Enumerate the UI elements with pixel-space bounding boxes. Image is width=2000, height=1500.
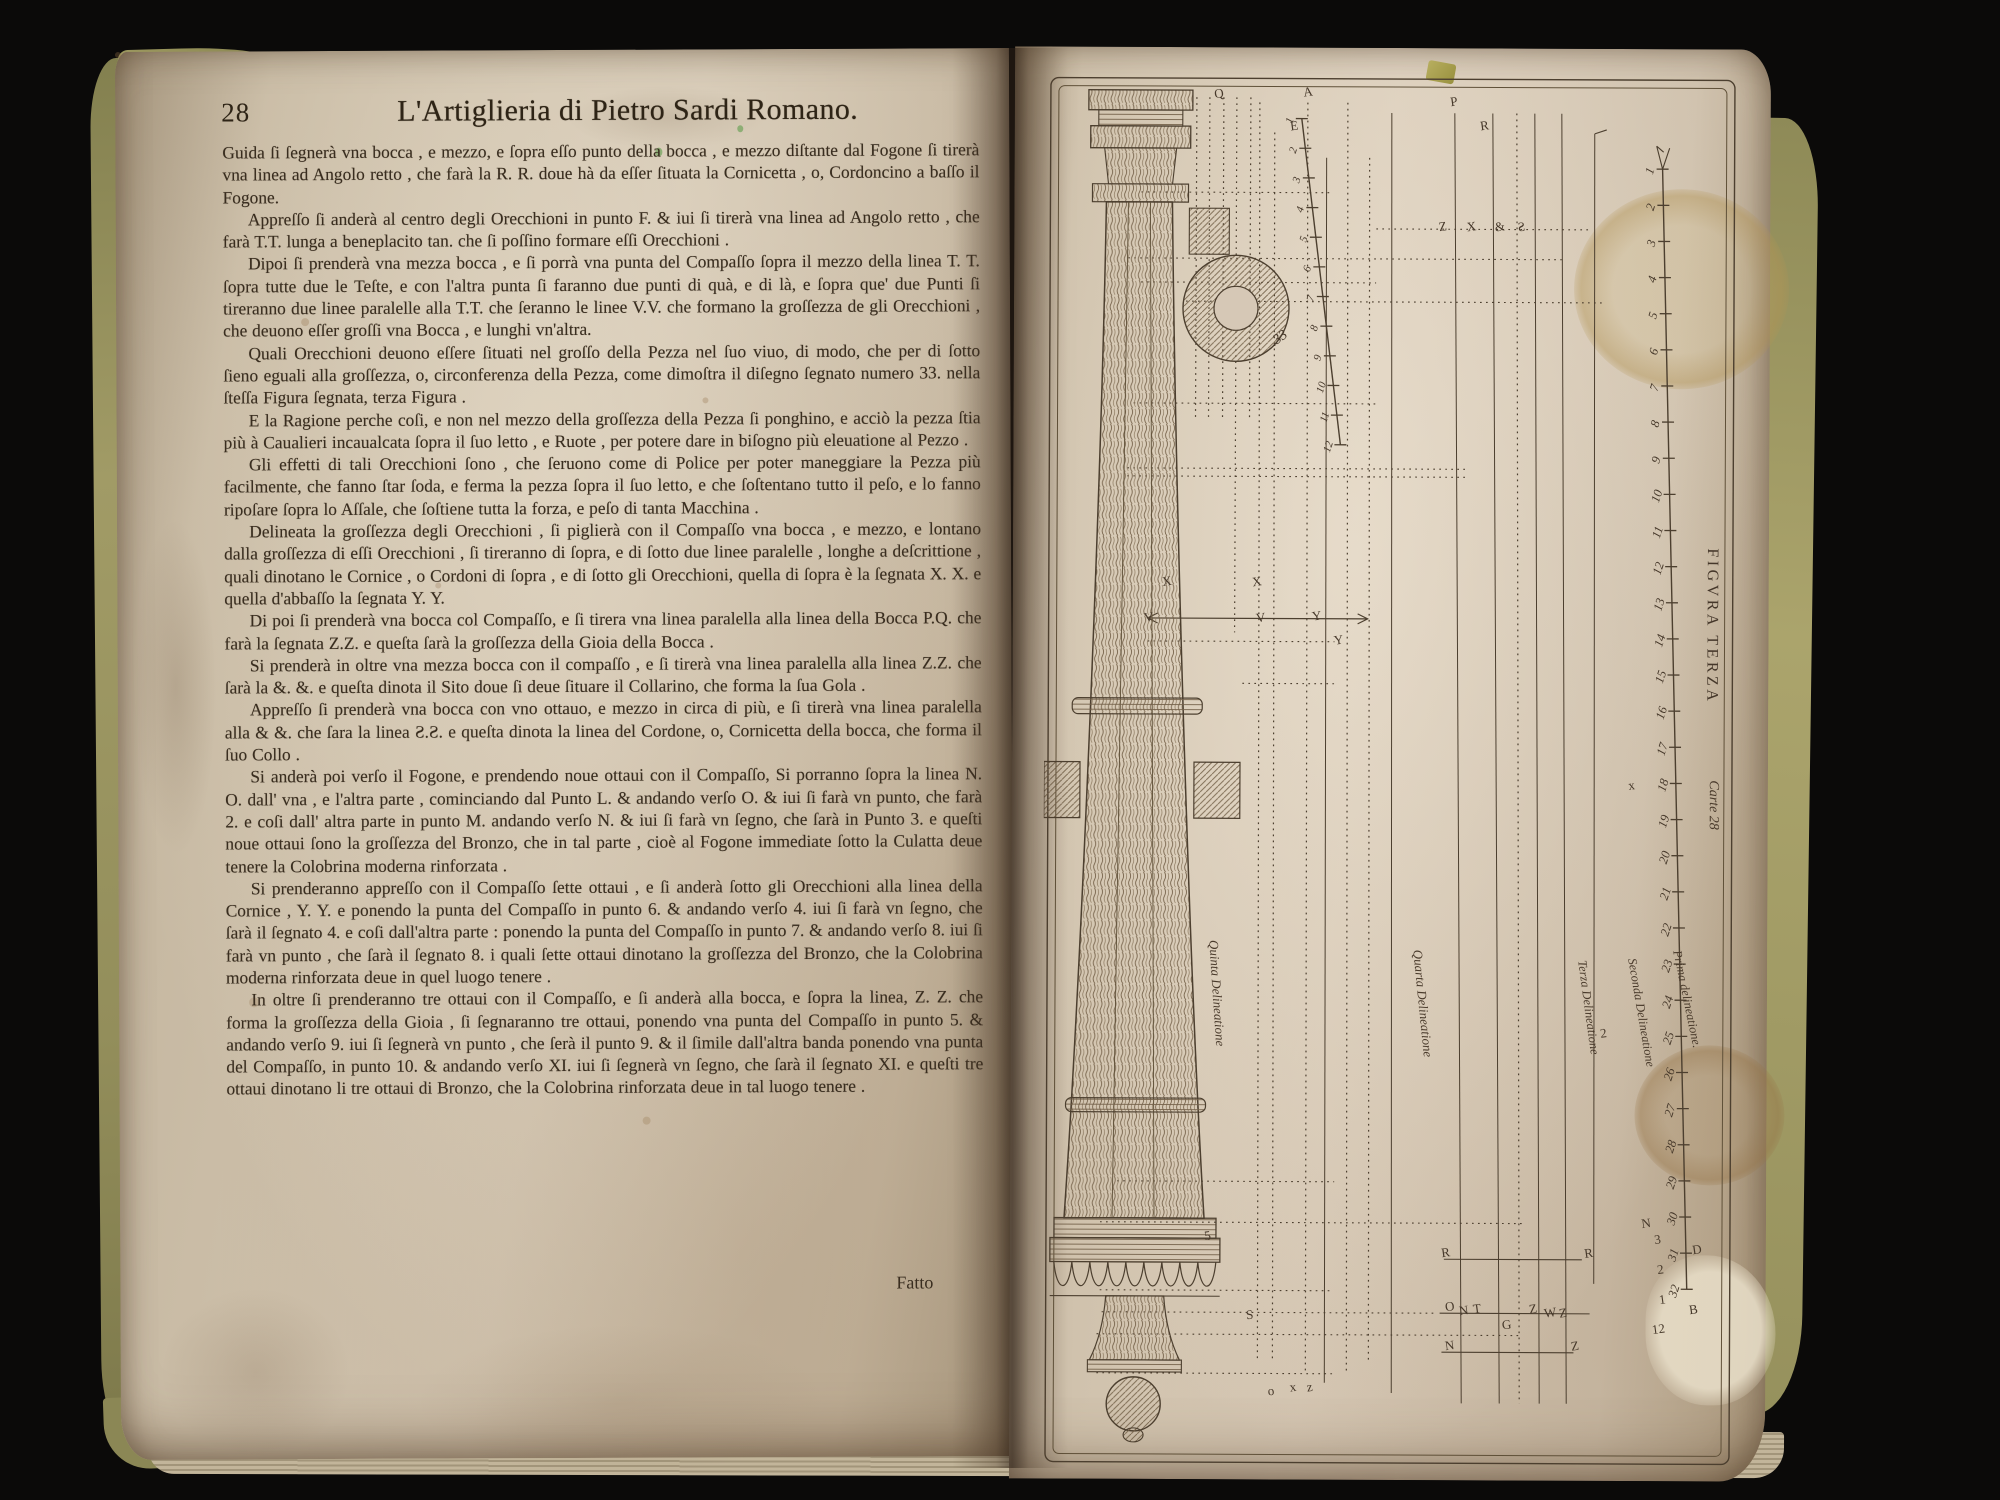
- delineation-label-2: Quarta Delineatione: [1410, 949, 1436, 1058]
- reference-letter: x: [1627, 777, 1636, 793]
- page-left: 28 L'Artiglieria di Pietro Sardi Romano.…: [115, 48, 1015, 1460]
- delineation-label-3: Terza Delineatione: [1575, 959, 1602, 1055]
- reference-letter: W: [1543, 1304, 1558, 1321]
- paragraph-1: Guida ſi ſegnerà vna bocca , e mezzo, e …: [222, 138, 979, 208]
- ruler-number: 10: [1314, 380, 1329, 395]
- ruler-number: 27: [1661, 1102, 1678, 1119]
- paragraph-13: In oltre ſi prenderanno tre ottaui con i…: [226, 985, 983, 1100]
- ruler-number: 9: [1311, 353, 1324, 362]
- ruler-number: 17: [1654, 740, 1671, 757]
- ruler-number: 22: [1658, 922, 1675, 938]
- reference-letter: 2: [1599, 1025, 1607, 1041]
- cascabel-ball: [1106, 1377, 1160, 1431]
- delineation-label-1: Quinta Delineatione: [1206, 939, 1228, 1046]
- reference-letter: R: [1440, 1244, 1451, 1260]
- construction-line-vertical: [1342, 103, 1352, 1373]
- page-header: 28 L'Artiglieria di Pietro Sardi Romano.: [221, 92, 979, 129]
- construction-line-vertical: [1556, 114, 1572, 1404]
- figure-title-vertical: FIGVRA TERZA: [1703, 548, 1721, 704]
- reference-letter: N: [1444, 1337, 1456, 1353]
- ruler-number: 5: [1297, 234, 1310, 243]
- reference-letter: Q: [1213, 85, 1225, 101]
- construction-line-vertical: [1196, 97, 1197, 417]
- construction-line-vertical: [1590, 134, 1599, 1284]
- paragraph-8: Di poi ſi prenderà vna bocca col Compaſſ…: [224, 606, 981, 654]
- ruler-number: 26: [1661, 1065, 1678, 1082]
- closing-word: Fatto: [227, 1272, 933, 1296]
- reference-letter: z: [1306, 1379, 1314, 1395]
- carte-label: Carte 28: [1706, 780, 1721, 829]
- paragraph-4: Quali Orecchioni deuono eſſere ſituati n…: [223, 339, 980, 409]
- reference-letter: G: [1501, 1316, 1512, 1332]
- ruler-number: 11: [1318, 410, 1333, 423]
- gadroon-band: [1054, 1262, 1216, 1287]
- ruler-number: 4: [1294, 205, 1307, 214]
- paragraph-11: Si anderà poi verſo il Fogone, e prenden…: [225, 762, 982, 877]
- ruler-number: 31: [1664, 1247, 1682, 1264]
- scale-ruler-main: 1234567891011121314151617181920212223242…: [1637, 166, 1697, 1300]
- ruler-number: 18: [1654, 776, 1671, 793]
- photo-backdrop: 28 L'Artiglieria di Pietro Sardi Romano.…: [0, 0, 2000, 1500]
- ruler-number: 1: [1642, 166, 1657, 176]
- ruler-number: 7: [1647, 382, 1662, 393]
- ruler-number: 2: [1643, 202, 1658, 212]
- ruler-finial: [1595, 130, 1607, 134]
- reference-letter: X: [1466, 218, 1478, 234]
- delineation-label-4: Seconda Delineatione: [1625, 957, 1658, 1068]
- paragraph-9: Si prenderà in oltre vna mezza bocca con…: [225, 651, 982, 699]
- ruler-number: 6: [1646, 346, 1661, 357]
- page-number: 28: [221, 97, 250, 128]
- reference-letter: O: [1444, 1298, 1455, 1314]
- ruler-number: 8: [1308, 323, 1321, 332]
- ruler-number: 32: [1665, 1283, 1683, 1300]
- ruler-number: 8: [1648, 418, 1663, 429]
- ruler-number: 28: [1662, 1138, 1679, 1155]
- ruler-number: 13: [1651, 596, 1668, 612]
- page-title: L'Artiglieria di Pietro Sardi Romano.: [250, 92, 979, 129]
- ruler-finial: [1657, 146, 1670, 169]
- reference-letter: N: [1640, 1215, 1652, 1231]
- reinforce-ring: [1072, 698, 1202, 715]
- reference-letter: 2: [1656, 1261, 1664, 1277]
- ruler-number: 15: [1652, 669, 1669, 685]
- cascabel-collar: [1087, 1360, 1181, 1372]
- muzzle-fillet: [1099, 110, 1183, 126]
- ruler-number: 9: [1648, 454, 1663, 465]
- reference-letter: 12: [1651, 1321, 1666, 1338]
- muzzle-astragal: [1092, 184, 1188, 202]
- construction-line-vertical: [1364, 158, 1373, 1363]
- construction-line-horizontal: [1127, 476, 1465, 477]
- ruler-number: 3: [1290, 175, 1304, 185]
- ruler-number: 30: [1663, 1210, 1681, 1228]
- vent-block: [1189, 208, 1229, 254]
- construction-line-horizontal: [1441, 1352, 1573, 1353]
- construction-line-horizontal: [1376, 229, 1591, 230]
- paragraph-10: Appreſſo ſi prenderà vna bocca con vno o…: [225, 696, 982, 766]
- muzzle-swell-ring: [1091, 126, 1191, 148]
- muzzle-neck: [1105, 148, 1177, 184]
- ruler-number: 11: [1649, 525, 1666, 540]
- base-ring: [1054, 1218, 1216, 1239]
- construction-line-vertical: [1487, 113, 1505, 1403]
- reference-letter: V: [1255, 609, 1267, 625]
- ruler-line: [1658, 169, 1692, 1289]
- reference-letter: R: [1583, 1245, 1594, 1261]
- trunnion-left: [1044, 761, 1080, 817]
- construction-line-horizontal: [1096, 1373, 1333, 1374]
- reference-letter: x: [1289, 1379, 1298, 1395]
- reference-letter: B: [1688, 1301, 1699, 1317]
- ruler-number: 24: [1659, 994, 1676, 1010]
- trunnion-right: [1194, 762, 1240, 818]
- ruler-number: 2: [1287, 145, 1300, 154]
- reference-letter: T: [1472, 1300, 1482, 1316]
- ruler-number: 12: [1650, 560, 1667, 576]
- ruler-number: 14: [1651, 632, 1668, 648]
- reinforce-ring: [1065, 1098, 1205, 1113]
- construction-line-horizontal: [1444, 1259, 1582, 1260]
- paragraph-12: Si prenderanno appreſſo con il Compaſſo …: [226, 874, 983, 989]
- reference-letter: Z: [1570, 1338, 1580, 1354]
- ruler-number: 25: [1660, 1030, 1677, 1046]
- reference-letter: E: [1289, 118, 1299, 134]
- paragraph-6: Gli effetti di tali Orecchioni ſono , ch…: [224, 450, 981, 520]
- stain: [135, 522, 216, 852]
- construction-line-vertical: [1209, 97, 1210, 417]
- ruler-line: [1300, 119, 1341, 445]
- reference-letter: A: [1302, 83, 1314, 99]
- construction-line-horizontal: [1127, 468, 1465, 469]
- ruler-number: 21: [1657, 885, 1674, 901]
- ruler-number: 19: [1655, 812, 1672, 829]
- reference-letter: N: [1458, 1302, 1470, 1318]
- reference-letter: Y: [1311, 607, 1323, 623]
- reference-letter: S: [1245, 1307, 1254, 1323]
- ruler-number: 16: [1653, 704, 1670, 721]
- ruler-number: 29: [1663, 1174, 1680, 1191]
- construction-line-vertical: [1511, 114, 1525, 1404]
- reference-letter: X: [1251, 573, 1263, 589]
- reference-letter: Z: [1558, 1305, 1568, 1321]
- page-right: .331234567891011121314151617181920212223…: [1009, 46, 1771, 1481]
- construction-line-vertical: [1386, 113, 1397, 1393]
- reference-letter: R: [1479, 117, 1490, 133]
- ruler-number: 5: [1645, 310, 1660, 320]
- ruler-number: 20: [1656, 849, 1673, 866]
- paragraph-7: Delineata la groſſezza degli Orecchioni …: [224, 517, 981, 609]
- reference-letter: Ƨ: [1517, 219, 1526, 235]
- stain: [420, 1325, 821, 1477]
- muzzle-face: [1089, 90, 1193, 110]
- paragraph-3: Dipoi ſi prenderà vna mezza bocca , e ſi…: [223, 250, 980, 342]
- reference-letter: 3: [1653, 1231, 1661, 1247]
- construction-line-vertical: [1449, 113, 1467, 1403]
- cascabel-neck: [1089, 1296, 1179, 1360]
- reference-letter: P: [1449, 93, 1458, 109]
- body-text: Guida ſi ſegnerà vna bocca , e mezzo, e …: [222, 138, 983, 1100]
- cascabel-button: [1123, 1428, 1143, 1442]
- foxing-spots: [115, 52, 121, 58]
- ruler-number: 12: [1321, 439, 1336, 454]
- engraving-plate: .331234567891011121314151617181920212223…: [1041, 70, 1759, 1477]
- reference-letter: &: [1494, 218, 1506, 234]
- construction-line-vertical: [1235, 97, 1237, 632]
- paragraph-5: E la Ragione perche coſi, e non nel mezz…: [223, 406, 980, 454]
- construction-line-horizontal: [1100, 1290, 1334, 1291]
- ruler-number: 4: [1644, 274, 1659, 284]
- paragraph-2: Appreſſo ſi anderà al centro degli Orecc…: [223, 205, 980, 253]
- construction-line-vertical: [1529, 114, 1545, 1404]
- base-plate: [1050, 1238, 1220, 1263]
- bore-section-hole: [1214, 286, 1258, 330]
- reference-letter: o: [1267, 1383, 1275, 1399]
- reference-letter: Y: [1333, 632, 1345, 648]
- reference-letter: Z: [1438, 218, 1448, 234]
- reference-letter: Z: [1528, 1301, 1538, 1317]
- reference-letter: D: [1691, 1241, 1702, 1257]
- stain: [160, 1287, 351, 1458]
- ruler-number: 10: [1648, 487, 1665, 504]
- ruler-number: 3: [1643, 238, 1659, 249]
